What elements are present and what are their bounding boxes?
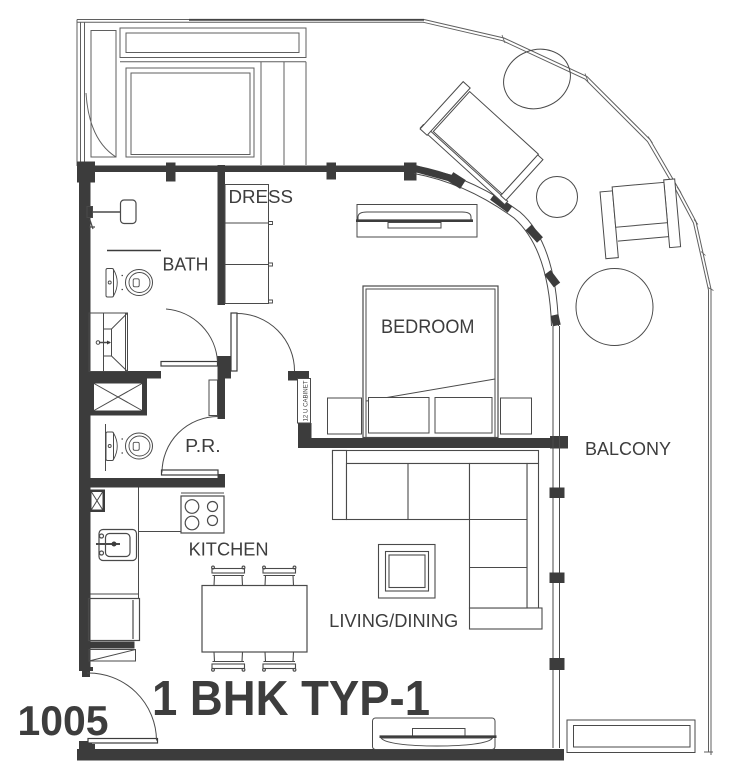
svg-text:KITCHEN: KITCHEN (189, 540, 269, 560)
svg-text:LIVING/DINING: LIVING/DINING (329, 611, 458, 631)
svg-text:BEDROOM: BEDROOM (381, 317, 475, 338)
svg-text:1005: 1005 (18, 697, 109, 744)
svg-text:1 BHK TYP-1: 1 BHK TYP-1 (152, 672, 430, 726)
svg-text:12 U CABINET: 12 U CABINET (304, 380, 310, 421)
svg-text:BALCONY: BALCONY (585, 439, 671, 459)
svg-text:BATH: BATH (163, 254, 209, 274)
svg-text:P.R.: P.R. (185, 436, 221, 456)
svg-text:DRESS: DRESS (229, 187, 294, 207)
